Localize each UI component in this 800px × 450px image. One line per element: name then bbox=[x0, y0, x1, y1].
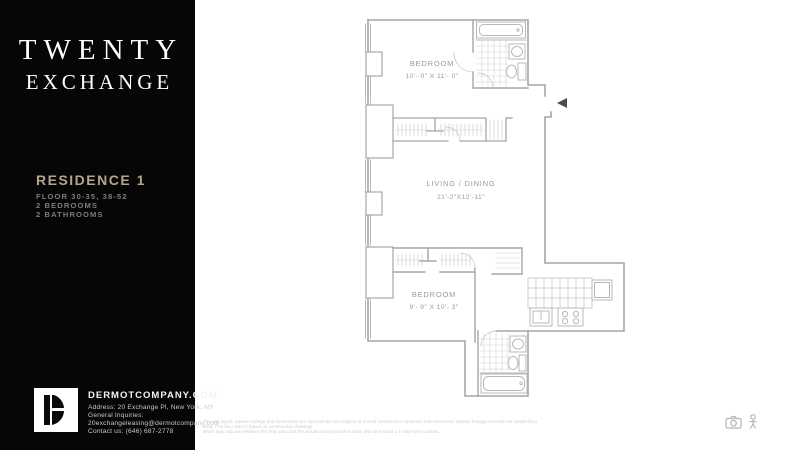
bedroom2-label: BEDROOM bbox=[412, 290, 456, 299]
phone-line: Contact us: (646) 687-2778 bbox=[88, 428, 220, 436]
bedroom1-dimensions: 10'- 0" X 11'- 0" bbox=[405, 73, 458, 80]
bedroom2-dimensions: 9'- 9" X 10'- 3" bbox=[409, 304, 459, 311]
bathroom1-fixtures bbox=[476, 22, 526, 88]
toilet-fixture bbox=[518, 63, 526, 80]
brand-line-twenty: TWENTY bbox=[0, 34, 195, 67]
living-dining-label: LIVING / DINING bbox=[426, 179, 495, 188]
email-link[interactable]: 20exchangeleasing@dermotcompany.com bbox=[88, 420, 220, 428]
disclaimer-text: The unit layout, square footage and dime… bbox=[203, 419, 548, 435]
closet-rod-hatch bbox=[396, 124, 483, 136]
brand-line-exchange: EXCHANGE bbox=[0, 70, 195, 95]
person-icon[interactable] bbox=[748, 414, 758, 430]
pantry-shelves bbox=[496, 253, 520, 268]
living-dining-dimensions: 21'-2"X12'-11" bbox=[437, 194, 485, 201]
disclaimer-line2: which may indicate between this floor pl… bbox=[203, 429, 548, 434]
entry-arrow-marker bbox=[557, 98, 567, 108]
contact-text: DERMOTCOMPANY.COM Address: 20 Exchange P… bbox=[88, 388, 220, 436]
linen-closet-shelves bbox=[490, 120, 502, 139]
residence-title: RESIDENCE 1 bbox=[36, 172, 146, 188]
stove-fixture bbox=[558, 308, 583, 326]
contact-block: DERMOTCOMPANY.COM Address: 20 Exchange P… bbox=[34, 388, 220, 436]
closet2-rod-hatch bbox=[396, 254, 471, 266]
bedroom1-label: BEDROOM bbox=[410, 59, 454, 68]
website-link[interactable]: DERMOTCOMPANY.COM bbox=[88, 390, 220, 401]
brand-logo-text: TWENTY EXCHANGE bbox=[0, 34, 195, 95]
residence-info: RESIDENCE 1 FLOOR 30-35, 38-52 2 BEDROOM… bbox=[36, 172, 146, 220]
address-line: Address: 20 Exchange Pl, New York, NY bbox=[88, 404, 220, 412]
dermot-company-logo-icon bbox=[34, 388, 78, 432]
view-toggle-icons bbox=[725, 414, 758, 430]
bathroom2-fixtures bbox=[478, 331, 528, 396]
camera-icon[interactable] bbox=[725, 415, 742, 429]
residence-bathrooms: 2 BATHROOMS bbox=[36, 210, 146, 219]
kitchen-counter-grid bbox=[528, 278, 592, 308]
toilet-fixture bbox=[519, 355, 526, 371]
residence-bedrooms: 2 BEDROOMS bbox=[36, 201, 146, 210]
floor-plan: BEDROOM 10'- 0" X 11'- 0" LIVING / DININ… bbox=[340, 0, 650, 450]
residence-floors: FLOOR 30-35, 38-52 bbox=[36, 192, 146, 201]
room-labels: BEDROOM 10'- 0" X 11'- 0" LIVING / DININ… bbox=[405, 59, 495, 311]
inquiries-label: General Inquiries: bbox=[88, 412, 220, 420]
disclaimer-line1: The unit layout, square footage and dime… bbox=[203, 419, 548, 429]
page: TWENTY EXCHANGE RESIDENCE 1 FLOOR 30-35,… bbox=[0, 0, 800, 450]
bathroom2-tile-floor bbox=[480, 333, 510, 371]
sidebar: TWENTY EXCHANGE RESIDENCE 1 FLOOR 30-35,… bbox=[0, 0, 195, 450]
kitchen-fixtures bbox=[528, 278, 612, 326]
closet-band-top bbox=[393, 118, 506, 141]
bathroom1-tile-floor bbox=[476, 40, 508, 86]
